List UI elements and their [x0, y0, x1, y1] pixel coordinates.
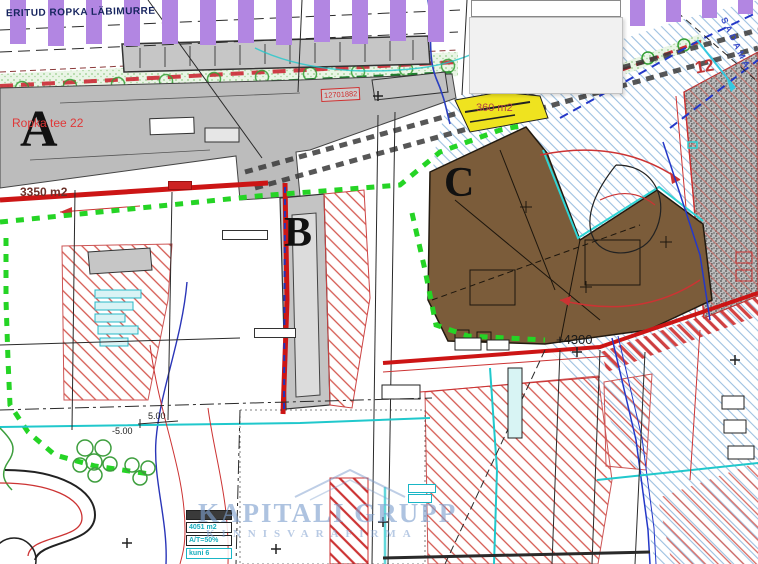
area-c-label: 360 m2	[476, 103, 513, 114]
plot-label-b: B	[284, 212, 312, 254]
info-box-area: 4051 m2	[186, 522, 232, 533]
street-name-label: Ropka tee 22	[12, 117, 83, 129]
plot-label-c: C	[444, 162, 474, 204]
area-a-label: 3350 m2	[20, 186, 67, 198]
tooltip-popup-header[interactable]	[471, 0, 621, 17]
info-box-dark	[186, 510, 232, 520]
plot-label-12: 12	[694, 56, 716, 76]
planning-info-stack: 4051 m2 A/T=50% kuni 6	[186, 510, 232, 559]
utility-chip-1	[408, 484, 436, 493]
cadastral-ref-label: 12701882	[321, 87, 361, 102]
info-box-ratio: A/T=50%	[186, 535, 232, 546]
dim-mark-label: +4300	[556, 333, 593, 346]
utility-chip-2	[408, 494, 432, 503]
plot-label-a: A	[20, 104, 58, 156]
tooltip-popup-body[interactable]	[469, 17, 623, 94]
tree-clusters	[0, 428, 155, 490]
elevation-label-1: 5.00	[148, 412, 166, 421]
info-box-height: kuni 6	[186, 548, 232, 559]
boundary-chip-1	[222, 230, 268, 240]
boundary-chip-red	[168, 181, 192, 190]
site-plan-canvas: ERITUD ROPKA LÄBIMURRE A B C 12 Ropka te…	[0, 0, 758, 564]
boundary-chip-2	[254, 328, 296, 338]
elevation-label-2: -5.00	[112, 427, 133, 436]
site-plan-linework	[0, 0, 758, 564]
